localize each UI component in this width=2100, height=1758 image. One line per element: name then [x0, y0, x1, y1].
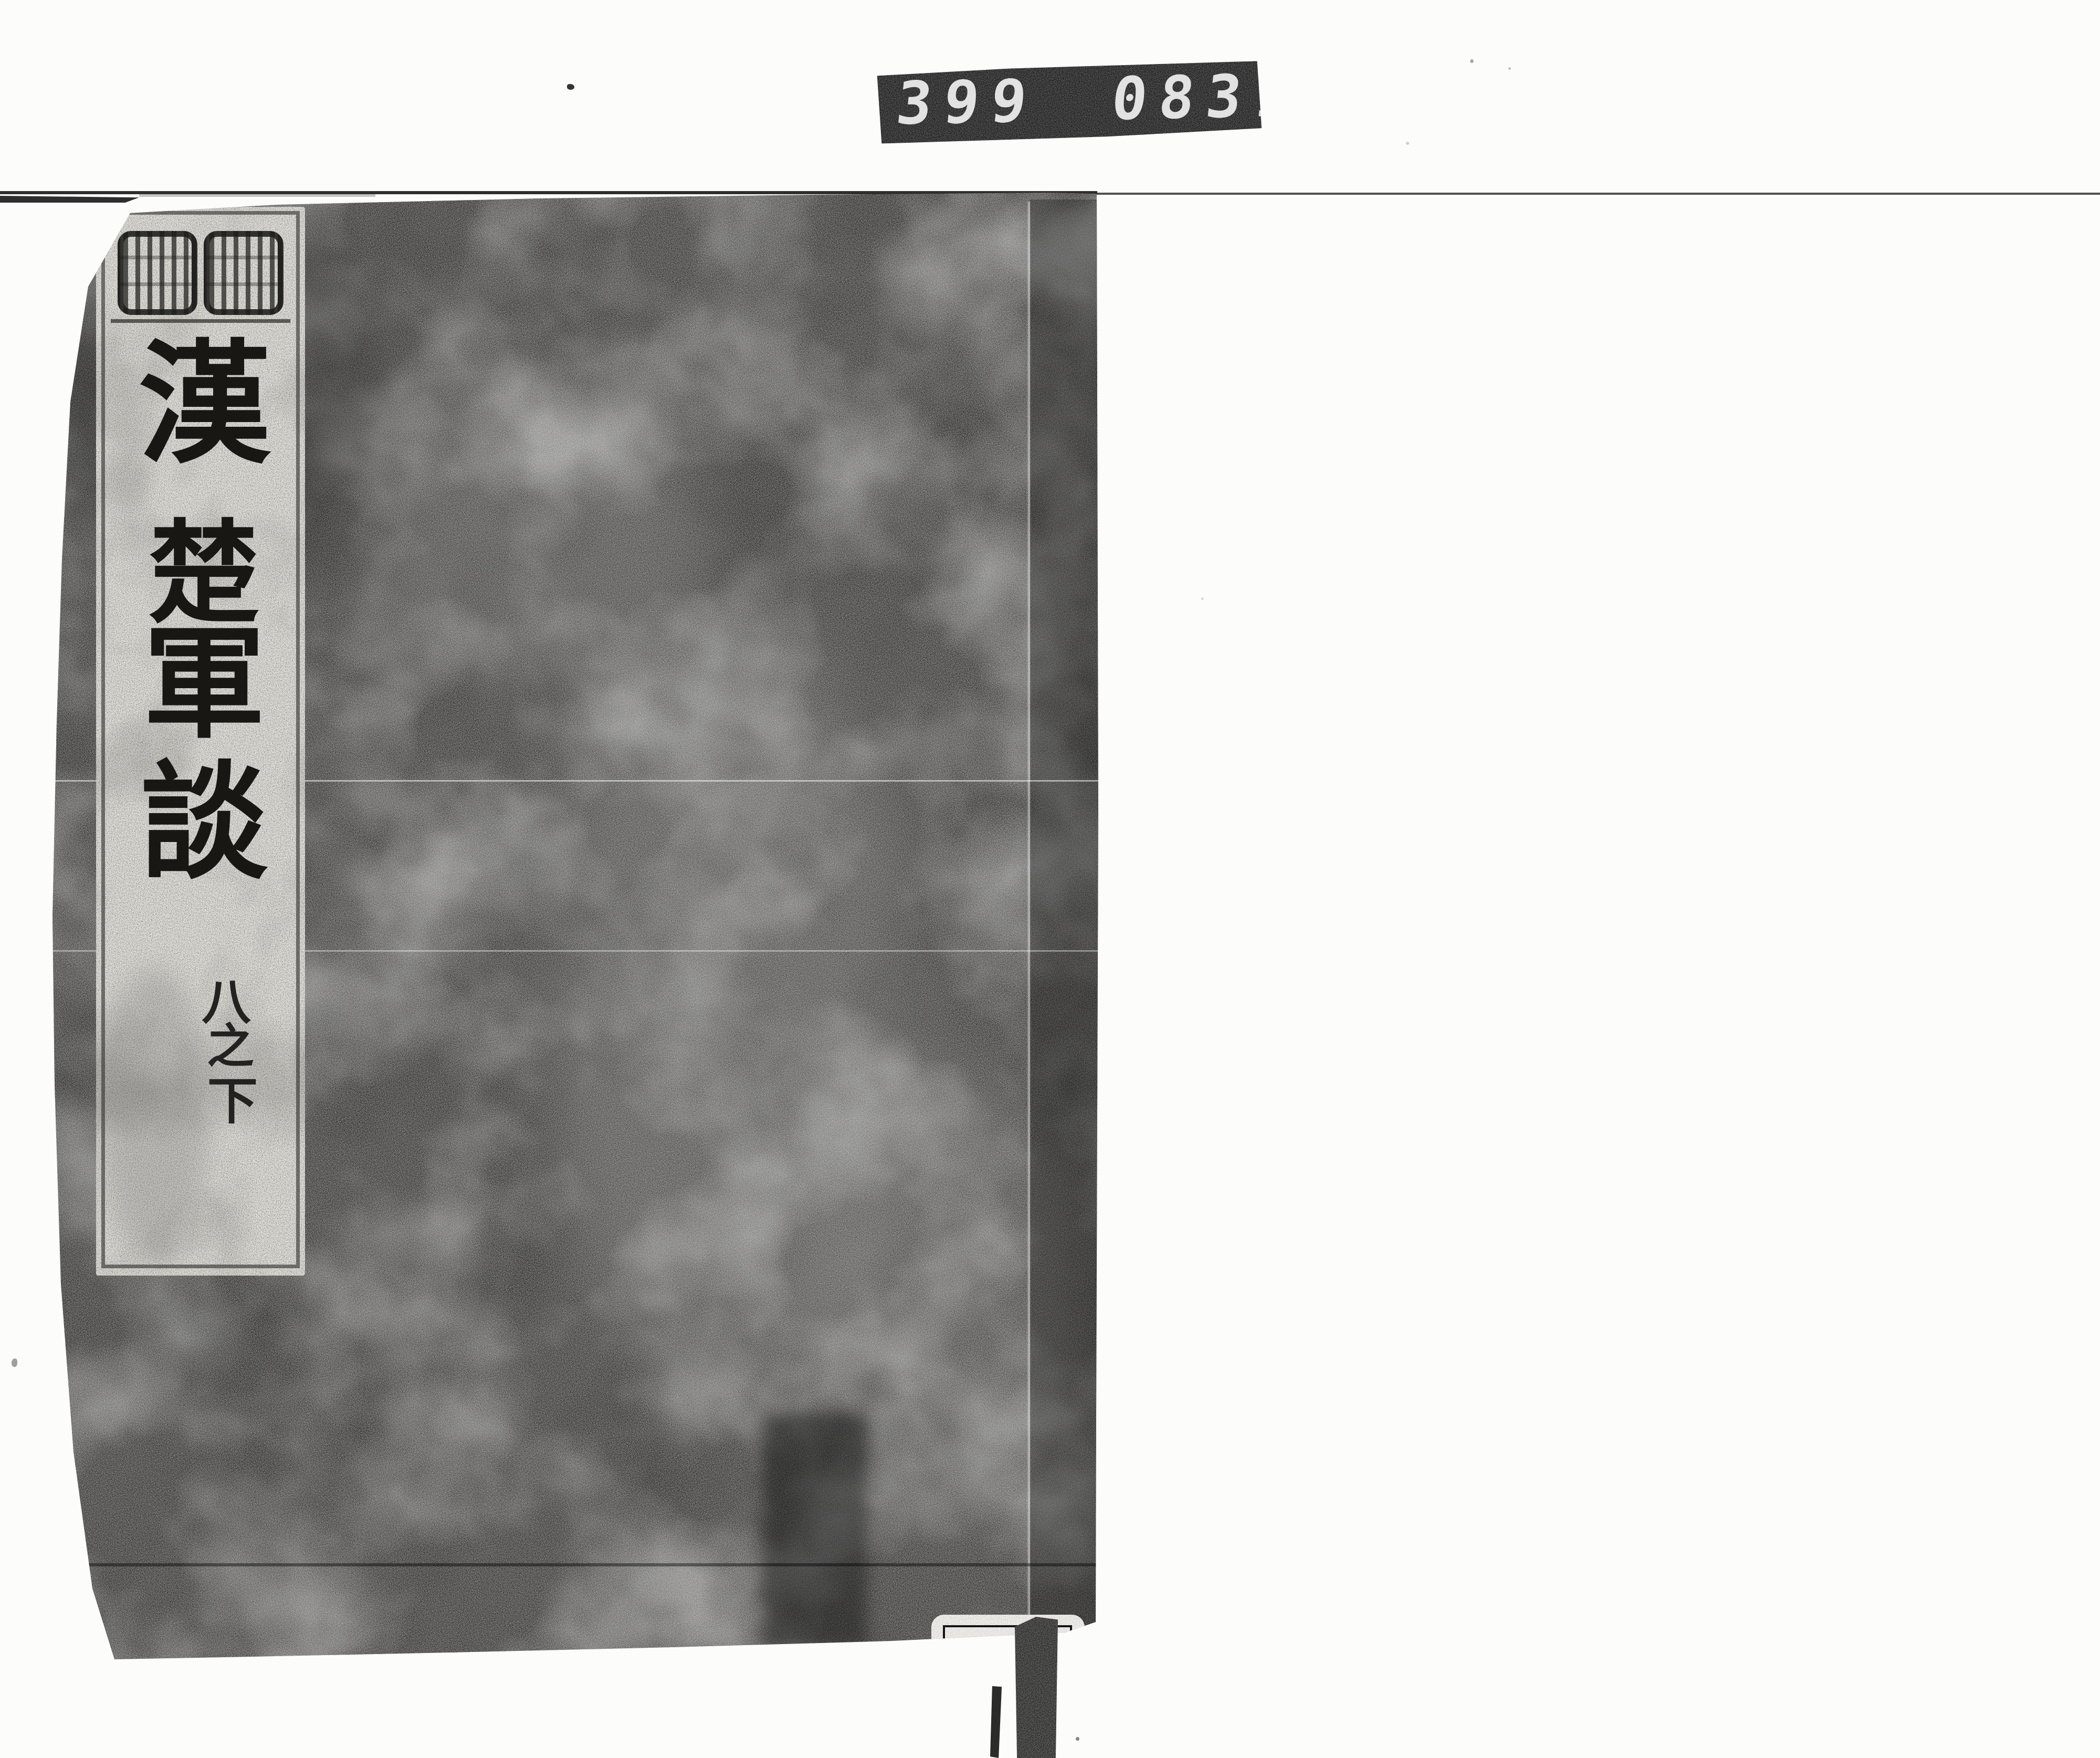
book-cover: 漢 楚 軍 談 八 之 下 ナ 4 231 9 国文学研究資料館: [51, 192, 1099, 1659]
ink-speck: [1406, 142, 1409, 145]
cover-fold-shadow-band: [1030, 199, 1099, 1625]
platen-edge-bar: [0, 196, 139, 203]
scanned-page: 399 083.: [0, 0, 2100, 1758]
title-slip: 漢 楚 軍 談 八 之 下: [96, 207, 305, 1276]
publisher-seal: [118, 231, 283, 315]
counter-digits-right: 083.: [1108, 62, 1277, 134]
volume-char-ge: 下: [207, 1076, 258, 1127]
slip-wear-smudge: [99, 968, 209, 1262]
volume-char-no: 之: [207, 1023, 254, 1070]
ink-speck: [1201, 597, 1204, 600]
label-caption: 国文学研究資料館: [931, 1746, 1085, 1758]
call-number-label: ナ 4 231 9 国文学研究資料館: [931, 1615, 1085, 1758]
seal-panel-left: [118, 231, 197, 315]
seal-divider-rule: [111, 319, 290, 323]
ink-speck: [1508, 67, 1511, 70]
ink-speck: [12, 1359, 17, 1367]
seal-panel-right: [204, 231, 283, 315]
cover-light-wear-patch: [550, 623, 918, 1410]
ink-speck: [567, 84, 574, 90]
counter-digits-right-value: 083: [1108, 62, 1257, 134]
platen-edge-smudge: [139, 192, 375, 197]
title-char-kan: 漢: [139, 338, 271, 470]
scan-artifact-line-dark: [57, 1563, 1096, 1566]
tab-grain-texture: [1015, 1617, 1058, 1758]
photocopy-counter: 399 083.: [874, 61, 1262, 143]
counter-decimal-dot: .: [1251, 86, 1275, 125]
title-char-gun: 軍: [143, 623, 265, 744]
cover-dark-stain: [762, 1413, 867, 1648]
title-char-dan: 談: [141, 759, 268, 886]
page-tab-large: [1015, 1617, 1058, 1758]
counter-digits-left: 399: [893, 67, 1042, 138]
ink-speck: [1076, 1737, 1079, 1741]
platen-edge-line-right: [1095, 193, 2100, 195]
page-tab-small: [990, 1686, 1004, 1758]
ink-speck: [1470, 59, 1474, 63]
cover-light-wear-patch: [377, 418, 702, 691]
